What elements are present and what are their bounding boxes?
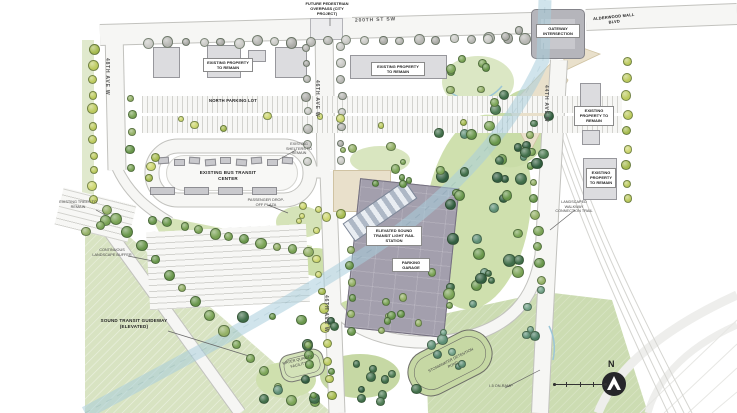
tree-icon bbox=[232, 340, 241, 349]
tree-icon bbox=[366, 372, 376, 382]
tree-icon bbox=[263, 112, 272, 121]
tree-icon bbox=[378, 122, 385, 129]
tree-icon bbox=[436, 166, 444, 174]
tree-icon bbox=[145, 174, 153, 182]
tree-icon bbox=[237, 311, 249, 323]
tree-icon bbox=[484, 121, 495, 132]
tree-icon bbox=[482, 63, 490, 71]
shelters-note: EXISTING SHELTERS TO REMAIN bbox=[280, 142, 318, 156]
existing-property-label-1: EXISTING PROPERTY TO REMAIN bbox=[203, 58, 253, 72]
tree-icon bbox=[391, 164, 401, 174]
tree-icon bbox=[473, 248, 485, 260]
tree-icon bbox=[431, 36, 440, 45]
tree-icon bbox=[460, 119, 467, 126]
tree-icon bbox=[531, 158, 542, 169]
tree-icon bbox=[530, 120, 537, 127]
tree-icon bbox=[357, 394, 366, 403]
tree-icon bbox=[501, 32, 510, 41]
tree-icon bbox=[102, 205, 112, 215]
tree-icon bbox=[360, 36, 369, 45]
tree-icon bbox=[288, 244, 298, 254]
tree-icon bbox=[273, 385, 283, 395]
tree-icon bbox=[622, 126, 631, 135]
tree-icon bbox=[151, 255, 159, 263]
tree-icon bbox=[623, 57, 632, 66]
tree-icon bbox=[322, 212, 331, 221]
tree-icon bbox=[347, 310, 354, 317]
tree-icon bbox=[148, 216, 157, 225]
bus-transit-center-label: EXISTING BUS TRANSIT CENTER bbox=[196, 170, 260, 181]
tree-icon bbox=[246, 354, 254, 362]
tree-icon bbox=[458, 55, 466, 63]
tree-icon bbox=[286, 37, 298, 49]
tree-icon bbox=[472, 234, 482, 244]
ramp-note: I-5 ON-RAMP bbox=[486, 384, 516, 389]
tree-icon bbox=[303, 124, 313, 134]
tree-icon bbox=[301, 92, 311, 102]
tree-icon bbox=[312, 255, 321, 264]
tree-icon bbox=[411, 384, 421, 394]
existing-property-label-4: EXISTING PROPERTY TO REMAIN bbox=[586, 168, 616, 188]
tree-icon bbox=[218, 325, 229, 336]
tree-icon bbox=[467, 35, 476, 44]
tree-icon bbox=[216, 38, 224, 46]
tree-icon bbox=[310, 392, 317, 399]
site-plan-map: 200TH ST SW 48TH AVE W 46TH AVE W 46TH A… bbox=[0, 0, 737, 413]
tree-icon bbox=[490, 98, 499, 107]
tree-icon bbox=[533, 242, 542, 251]
tree-icon bbox=[379, 36, 387, 44]
existing-property-label-3: EXISTING PROPERTY TO REMAIN bbox=[574, 106, 614, 126]
scale-bar bbox=[553, 381, 607, 387]
tree-icon bbox=[336, 58, 345, 67]
overpass-label: FUTURE PEDESTRIAN OVERPASS (CITY PROJECT… bbox=[302, 0, 352, 18]
tree-icon bbox=[447, 233, 459, 245]
tree-icon bbox=[624, 194, 633, 203]
tree-icon bbox=[376, 397, 385, 406]
tree-icon bbox=[520, 147, 531, 158]
street-label-46th-n: 46TH AVE W bbox=[314, 80, 320, 117]
tree-icon bbox=[348, 278, 357, 287]
tree-icon bbox=[323, 357, 332, 366]
gateway-intersection-label: GATEWAY INTERSECTION bbox=[536, 24, 580, 38]
tree-icon bbox=[369, 365, 377, 373]
tree-icon bbox=[388, 370, 396, 378]
tree-icon bbox=[128, 128, 135, 135]
tree-icon bbox=[210, 228, 222, 240]
tree-icon bbox=[445, 199, 456, 210]
tree-icon bbox=[90, 152, 98, 160]
buffer-note: CONTINUOUS LANDSCAPE BUFFER bbox=[92, 248, 132, 257]
tree-icon bbox=[190, 121, 199, 130]
tree-icon bbox=[533, 226, 543, 236]
tree-icon bbox=[315, 206, 322, 213]
tree-icon bbox=[446, 64, 456, 74]
tree-icon bbox=[621, 90, 631, 100]
tree-icon bbox=[296, 218, 302, 224]
tree-icon bbox=[399, 180, 407, 188]
tree-icon bbox=[514, 255, 524, 265]
tree-icon bbox=[382, 298, 390, 306]
tree-icon bbox=[515, 26, 524, 35]
tree-icon bbox=[128, 110, 137, 119]
tree-icon bbox=[450, 34, 458, 42]
tree-icon bbox=[621, 160, 631, 170]
tree-icon bbox=[537, 286, 545, 294]
garage-label: PARKING GARAGE bbox=[392, 258, 430, 272]
tree-icon bbox=[89, 91, 97, 99]
street-label-48th: 48TH AVE W bbox=[104, 58, 110, 95]
tree-icon bbox=[255, 238, 267, 250]
trees-note: EXISTING TREES TO REMAIN bbox=[58, 200, 98, 209]
tree-icon bbox=[415, 319, 423, 327]
tree-icon bbox=[259, 394, 269, 404]
north-label: N bbox=[608, 359, 615, 369]
tree-icon bbox=[81, 227, 91, 237]
tree-icon bbox=[624, 145, 632, 153]
tree-icon bbox=[414, 34, 425, 45]
north-parking-lot-label: NORTH PARKING LOT bbox=[198, 98, 268, 103]
tree-icon bbox=[336, 75, 345, 84]
tree-icon bbox=[336, 42, 345, 51]
guideway-label: SOUND TRANSIT GUIDEWAY (ELEVATED) bbox=[98, 318, 170, 329]
tree-icon bbox=[303, 75, 311, 83]
tree-icon bbox=[538, 149, 548, 159]
existing-property-label-2: EXISTING PROPERTY TO REMAIN bbox=[371, 62, 425, 76]
tree-icon bbox=[301, 375, 310, 384]
tree-icon bbox=[323, 36, 332, 45]
tree-icon bbox=[162, 36, 174, 48]
tree-icon bbox=[269, 313, 276, 320]
tree-icon bbox=[349, 294, 357, 302]
tree-icon bbox=[89, 122, 98, 131]
tree-icon bbox=[200, 38, 209, 47]
trail-note: LANDSCAPED WALKWAY CONNECTION TRAIL bbox=[552, 200, 596, 214]
tree-icon bbox=[347, 327, 356, 336]
tree-icon bbox=[477, 86, 484, 93]
tree-icon bbox=[182, 38, 190, 46]
tree-icon bbox=[460, 167, 470, 177]
tree-icon bbox=[434, 128, 443, 137]
tree-icon bbox=[512, 266, 524, 278]
tree-icon bbox=[164, 270, 175, 281]
tree-icon bbox=[337, 156, 346, 165]
tree-icon bbox=[273, 243, 281, 251]
tree-icon bbox=[143, 38, 154, 49]
tree-icon bbox=[336, 114, 345, 123]
tree-icon bbox=[353, 360, 360, 367]
station-label: ELEVATED SOUND TRANSIT LIGHT RAIL STATIO… bbox=[366, 226, 422, 246]
tree-icon bbox=[151, 153, 160, 162]
dropoff-note: PASSENGER DROP-OFF PLAZA bbox=[246, 198, 286, 207]
tree-icon bbox=[162, 217, 172, 227]
tree-icon bbox=[88, 135, 97, 144]
tree-icon bbox=[492, 172, 503, 183]
tree-icon bbox=[519, 33, 531, 45]
tree-icon bbox=[397, 310, 405, 318]
street-label-44th: 44TH AVE W bbox=[543, 85, 549, 122]
tree-icon bbox=[89, 44, 100, 55]
tree-icon bbox=[623, 180, 631, 188]
tree-icon bbox=[483, 34, 493, 44]
tree-icon bbox=[386, 142, 396, 152]
tree-icon bbox=[534, 258, 545, 269]
tree-icon bbox=[234, 38, 245, 49]
street-label-46th-s: 46TH AVE W bbox=[323, 295, 329, 332]
tree-icon bbox=[338, 92, 346, 100]
tree-icon bbox=[110, 213, 122, 225]
tree-icon bbox=[127, 95, 134, 102]
tree-icon bbox=[313, 227, 320, 234]
tree-icon bbox=[181, 222, 189, 230]
tree-icon bbox=[96, 221, 105, 230]
tree-icon bbox=[427, 340, 437, 350]
tree-icon bbox=[489, 203, 499, 213]
tree-icon bbox=[523, 303, 532, 312]
tree-icon bbox=[87, 181, 97, 191]
